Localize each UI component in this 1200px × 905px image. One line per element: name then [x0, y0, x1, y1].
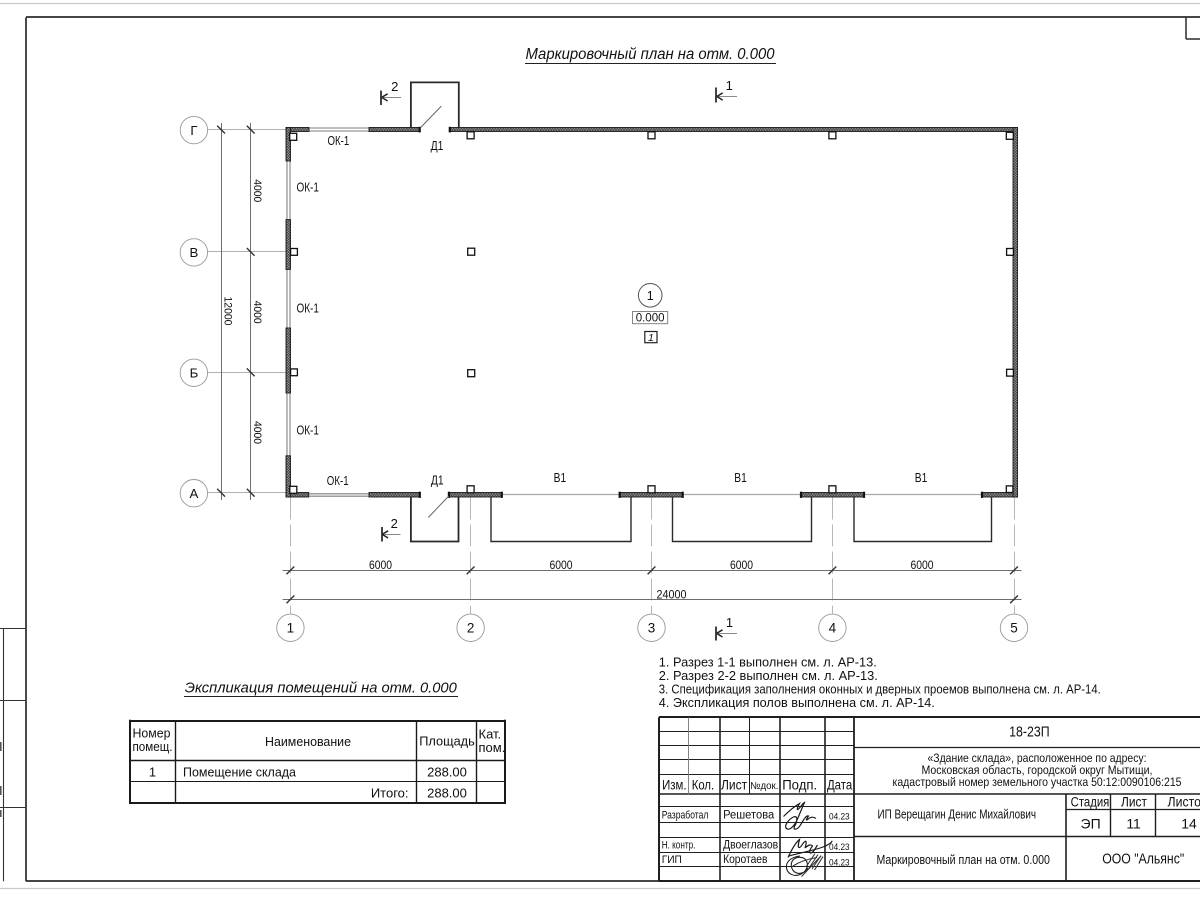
svg-text:пом.: пом. [479, 740, 506, 755]
svg-text:1: 1 [149, 765, 156, 780]
svg-text:ИП Верещагин Денис Михайлович: ИП Верещагин Денис Михайлович [878, 807, 1037, 822]
svg-text:ОК-1: ОК-1 [327, 474, 349, 488]
svg-text:2: 2 [391, 79, 398, 94]
svg-text:Н. контр.: Н. контр. [662, 840, 696, 852]
svg-text:Экспликация помещений на отм.: Экспликация помещений на отм. 0.000 [185, 680, 458, 697]
svg-text:№док.: №док. [750, 781, 778, 792]
svg-text:Листов: Листов [1168, 794, 1200, 809]
svg-text:Стадия: Стадия [1071, 794, 1110, 809]
svg-text:6000: 6000 [910, 558, 933, 572]
svg-text:Б: Б [190, 366, 199, 381]
svg-text:помещ.: помещ. [133, 739, 173, 754]
svg-text:Номер: Номер [133, 725, 171, 740]
svg-text:1: 1 [726, 615, 733, 630]
svg-text:Изм.: Изм. [662, 777, 686, 792]
svg-text:6000: 6000 [730, 558, 753, 572]
svg-text:4000: 4000 [251, 421, 263, 444]
svg-text:12000: 12000 [221, 297, 233, 326]
svg-text:Коротаев: Коротаев [723, 854, 767, 866]
svg-text:04.23: 04.23 [829, 858, 850, 868]
svg-text:Наименование: Наименование [265, 734, 351, 749]
svg-text:24000: 24000 [657, 588, 687, 602]
svg-text:Д1: Д1 [431, 473, 444, 488]
svg-text:04.23: 04.23 [829, 842, 850, 852]
svg-text:1: 1 [287, 621, 295, 636]
svg-text:Площадь: Площадь [419, 734, 475, 749]
svg-text:Д1: Д1 [431, 138, 444, 153]
svg-text:4: 4 [829, 621, 837, 636]
svg-text:288.00: 288.00 [427, 786, 467, 801]
svg-text:ООО "Альянс": ООО "Альянс" [1102, 851, 1184, 867]
svg-text:4. Экспликация полов выполнена: 4. Экспликация полов выполнена см. л. АР… [659, 695, 935, 710]
svg-text:Разработал: Разработал [662, 809, 709, 821]
svg-text:ОК-1: ОК-1 [296, 302, 319, 316]
svg-text:2: 2 [467, 621, 475, 636]
svg-text:ОК-1: ОК-1 [328, 134, 350, 148]
svg-text:Маркировочный план на отм. 0.0: Маркировочный план на отм. 0.000 [526, 46, 775, 63]
svg-text:Маркировочный план на отм. 0.0: Маркировочный план на отм. 0.000 [876, 852, 1050, 867]
svg-text:Кат.: Кат. [479, 726, 502, 741]
svg-text:В: В [190, 245, 199, 260]
svg-text:04.23: 04.23 [829, 811, 850, 821]
svg-text:А: А [190, 486, 199, 501]
svg-text:18-23П: 18-23П [1009, 724, 1050, 740]
svg-text:Двоеглазов: Двоеглазов [723, 840, 778, 852]
svg-text:кадастровый номер земельного у: кадастровый номер земельного участка 50:… [893, 775, 1182, 789]
svg-text:0.000: 0.000 [636, 313, 665, 325]
svg-text:Итого:: Итого: [371, 786, 409, 801]
svg-text:Дата: Дата [827, 777, 853, 792]
svg-text:Решетова: Решетова [723, 809, 775, 821]
svg-text:ОК-1: ОК-1 [296, 424, 319, 438]
svg-text:5: 5 [1010, 621, 1018, 636]
svg-text:Г: Г [190, 123, 197, 138]
svg-text:Лист: Лист [1121, 794, 1147, 809]
svg-text:Кол.: Кол. [692, 777, 714, 792]
svg-text:4000: 4000 [251, 301, 263, 324]
svg-text:288.00: 288.00 [427, 765, 467, 780]
svg-text:В1: В1 [554, 470, 567, 485]
svg-text:В1: В1 [734, 470, 747, 485]
svg-text:2: 2 [391, 516, 398, 531]
svg-text:6000: 6000 [369, 558, 392, 572]
svg-text:1: 1 [647, 289, 654, 303]
svg-text:3: 3 [648, 621, 656, 636]
svg-text:1: 1 [648, 332, 654, 344]
svg-text:11: 11 [1126, 815, 1141, 831]
svg-text:Лист: Лист [721, 777, 747, 792]
svg-text:1: 1 [726, 78, 733, 93]
svg-text:4000: 4000 [251, 179, 263, 202]
svg-text:ОК-1: ОК-1 [296, 181, 319, 195]
svg-text:6000: 6000 [549, 558, 572, 572]
svg-text:14: 14 [1181, 815, 1197, 831]
svg-text:ГИП: ГИП [662, 854, 682, 866]
svg-text:В1: В1 [915, 470, 928, 485]
svg-text:ЭП: ЭП [1081, 815, 1101, 831]
svg-text:Помещение склада: Помещение склада [183, 765, 297, 780]
svg-text:Подп.: Подп. [782, 777, 817, 792]
